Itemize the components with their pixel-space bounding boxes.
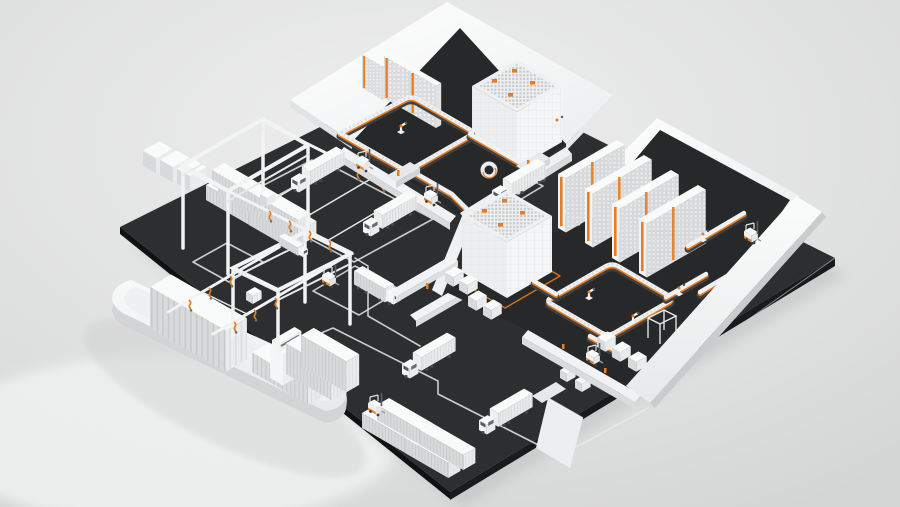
dock-door-accent [397, 170, 400, 176]
isometric-logistics-scene [0, 0, 900, 507]
door-accent [426, 283, 429, 289]
dock-door-accent [604, 368, 607, 373]
scene-canvas [0, 0, 900, 507]
dock-door-accent [562, 344, 565, 349]
